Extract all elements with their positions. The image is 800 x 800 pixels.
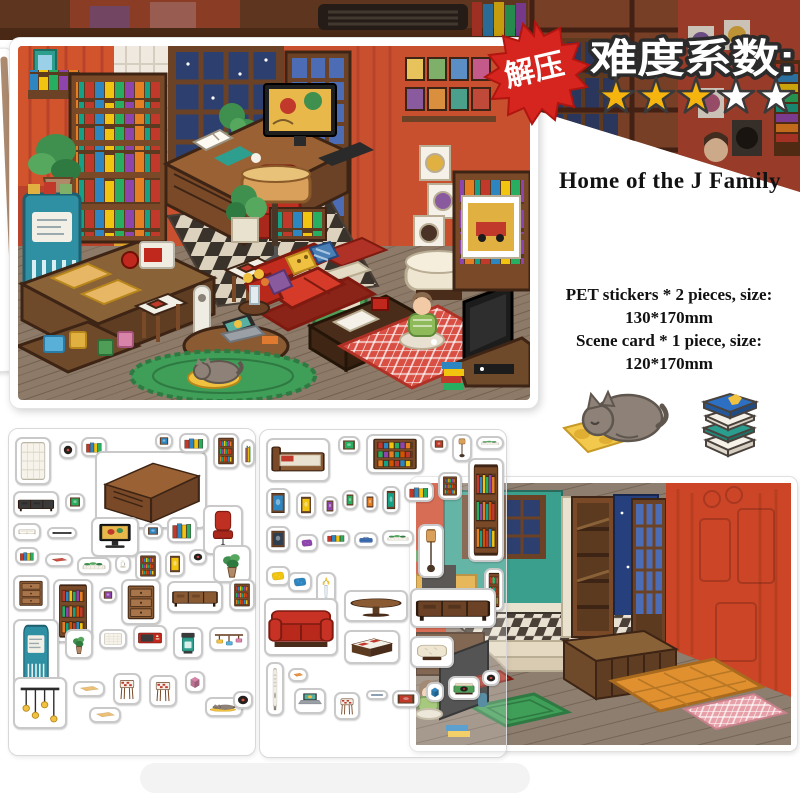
pillow-sticker <box>296 534 318 552</box>
sleeping-cat-illustration <box>558 376 686 462</box>
spec-line: PET stickers * 2 pieces, size: <box>538 284 800 307</box>
books-sticker <box>179 433 209 453</box>
books-sticker <box>322 530 350 546</box>
frame-sticker <box>296 492 316 518</box>
sofa-sticker <box>264 598 338 656</box>
shelf-sticker <box>438 472 462 500</box>
plant-sticker <box>213 545 251 583</box>
bookopen-sticker <box>13 523 41 541</box>
mat-sticker <box>288 668 308 682</box>
record-sticker <box>59 441 77 459</box>
spec-line: 120*170mm <box>538 353 800 376</box>
drawers-sticker <box>13 575 49 611</box>
plant-sticker <box>65 629 93 659</box>
tvconsole-sticker <box>410 588 496 628</box>
pillow-sticker <box>288 572 312 592</box>
checkertable-sticker <box>344 630 400 664</box>
frame-sticker <box>266 526 290 552</box>
product-specs: PET stickers * 2 pieces, size: 130*170mm… <box>538 284 800 376</box>
star-filled-icon <box>596 76 636 116</box>
stool-sticker <box>113 673 141 705</box>
background-art-top <box>0 0 528 40</box>
books-sticker <box>167 517 197 543</box>
sticker-sheet-left <box>8 428 256 756</box>
frame-sticker <box>143 523 163 539</box>
tablet-sticker <box>366 690 388 700</box>
suitcase-sticker <box>354 532 378 548</box>
shelf-sticker <box>366 434 424 474</box>
lamp-sticker <box>418 524 444 578</box>
difficulty-stars <box>596 76 796 118</box>
panel-sticker <box>15 437 51 485</box>
shelf-sticker <box>468 458 504 562</box>
tower-sticker <box>266 662 284 716</box>
frame-sticker <box>99 587 117 603</box>
books-sticker <box>241 439 255 467</box>
laptop-sticker <box>294 688 326 714</box>
star-filled-icon <box>676 76 716 116</box>
main-scene-illustration <box>18 46 530 400</box>
spec-line: 130*170mm <box>538 307 800 330</box>
books-sticker <box>15 547 39 565</box>
mat-sticker <box>89 707 121 723</box>
product-title: Home of the J Family <box>540 168 800 194</box>
coffeemaker-sticker <box>173 627 203 659</box>
player-sticker <box>448 676 480 700</box>
tvconsole-sticker <box>167 581 223 613</box>
mat-sticker <box>45 553 73 567</box>
shelf-sticker <box>135 551 161 581</box>
ottoman-sticker <box>410 636 454 668</box>
monitor-sticker <box>91 517 139 557</box>
planter-sticker <box>77 557 111 575</box>
sticker-sheet-middle <box>259 429 507 758</box>
star-empty-icon <box>716 76 756 116</box>
book-stack-illustration <box>698 384 760 458</box>
microwave-sticker <box>133 625 167 651</box>
frame-sticker <box>342 490 358 510</box>
mobile-sticker <box>13 677 67 729</box>
spec-line: Scene card * 1 piece, size: <box>538 330 800 353</box>
star-filled-icon <box>636 76 676 116</box>
coffee-sticker <box>115 555 131 573</box>
frame-sticker <box>322 496 338 516</box>
frame-sticker <box>430 436 448 452</box>
books-sticker <box>404 482 434 502</box>
tablet-sticker <box>47 527 77 539</box>
svg-text:难度系数:: 难度系数: <box>590 37 795 81</box>
frame-sticker <box>155 433 173 449</box>
pillow-sticker <box>266 566 290 586</box>
stress-relief-badge: 解压 <box>478 20 592 126</box>
tableround-sticker <box>344 590 408 622</box>
star-empty-icon <box>756 76 796 116</box>
page-shadow <box>140 763 530 793</box>
record-sticker <box>189 549 207 565</box>
stool-sticker <box>149 675 177 707</box>
rack-sticker <box>209 627 249 651</box>
frame-sticker <box>362 492 378 512</box>
frame-sticker <box>165 551 185 577</box>
panel-sticker <box>99 629 127 649</box>
record-sticker <box>233 691 253 709</box>
main-illustration-card <box>10 38 538 408</box>
frame-sticker <box>392 690 420 708</box>
drawers-sticker <box>121 579 161 625</box>
frame-sticker <box>338 436 360 454</box>
frame-sticker <box>266 488 290 518</box>
box-sticker <box>185 671 205 693</box>
bed-sticker <box>266 438 330 482</box>
tvconsole-sticker <box>13 491 59 517</box>
box-sticker <box>426 682 444 702</box>
record-sticker <box>482 670 500 686</box>
product-page: 解压 难度系数: Home of the J Family PET sticke… <box>0 0 800 800</box>
frame-sticker <box>382 486 400 514</box>
mat-sticker <box>73 681 105 697</box>
planter-sticker <box>476 436 504 450</box>
shelf-sticker <box>213 433 239 469</box>
shelf-sticker <box>229 579 255 611</box>
stool-sticker <box>334 692 360 720</box>
planter-sticker <box>382 530 414 546</box>
frame-sticker <box>65 493 85 511</box>
lamp-sticker <box>452 434 472 462</box>
